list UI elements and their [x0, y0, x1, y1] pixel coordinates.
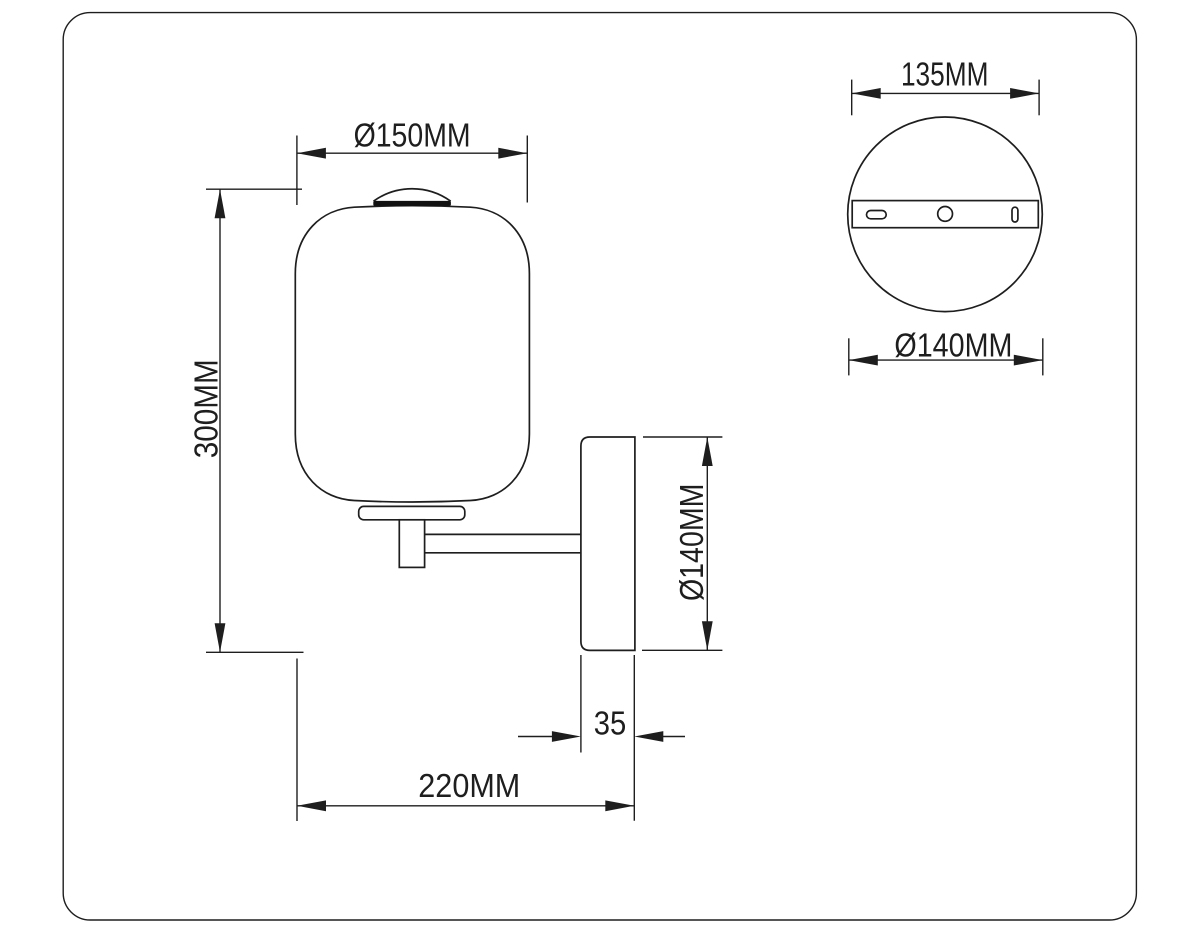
svg-text:Ø140MM: Ø140MM — [894, 326, 1012, 363]
svg-text:Ø140MM: Ø140MM — [673, 484, 710, 602]
svg-text:Ø150MM: Ø150MM — [354, 117, 471, 154]
svg-text:35: 35 — [594, 704, 627, 741]
svg-text:300MM: 300MM — [187, 359, 224, 458]
svg-text:220MM: 220MM — [418, 767, 520, 804]
svg-text:135MM: 135MM — [901, 56, 989, 93]
